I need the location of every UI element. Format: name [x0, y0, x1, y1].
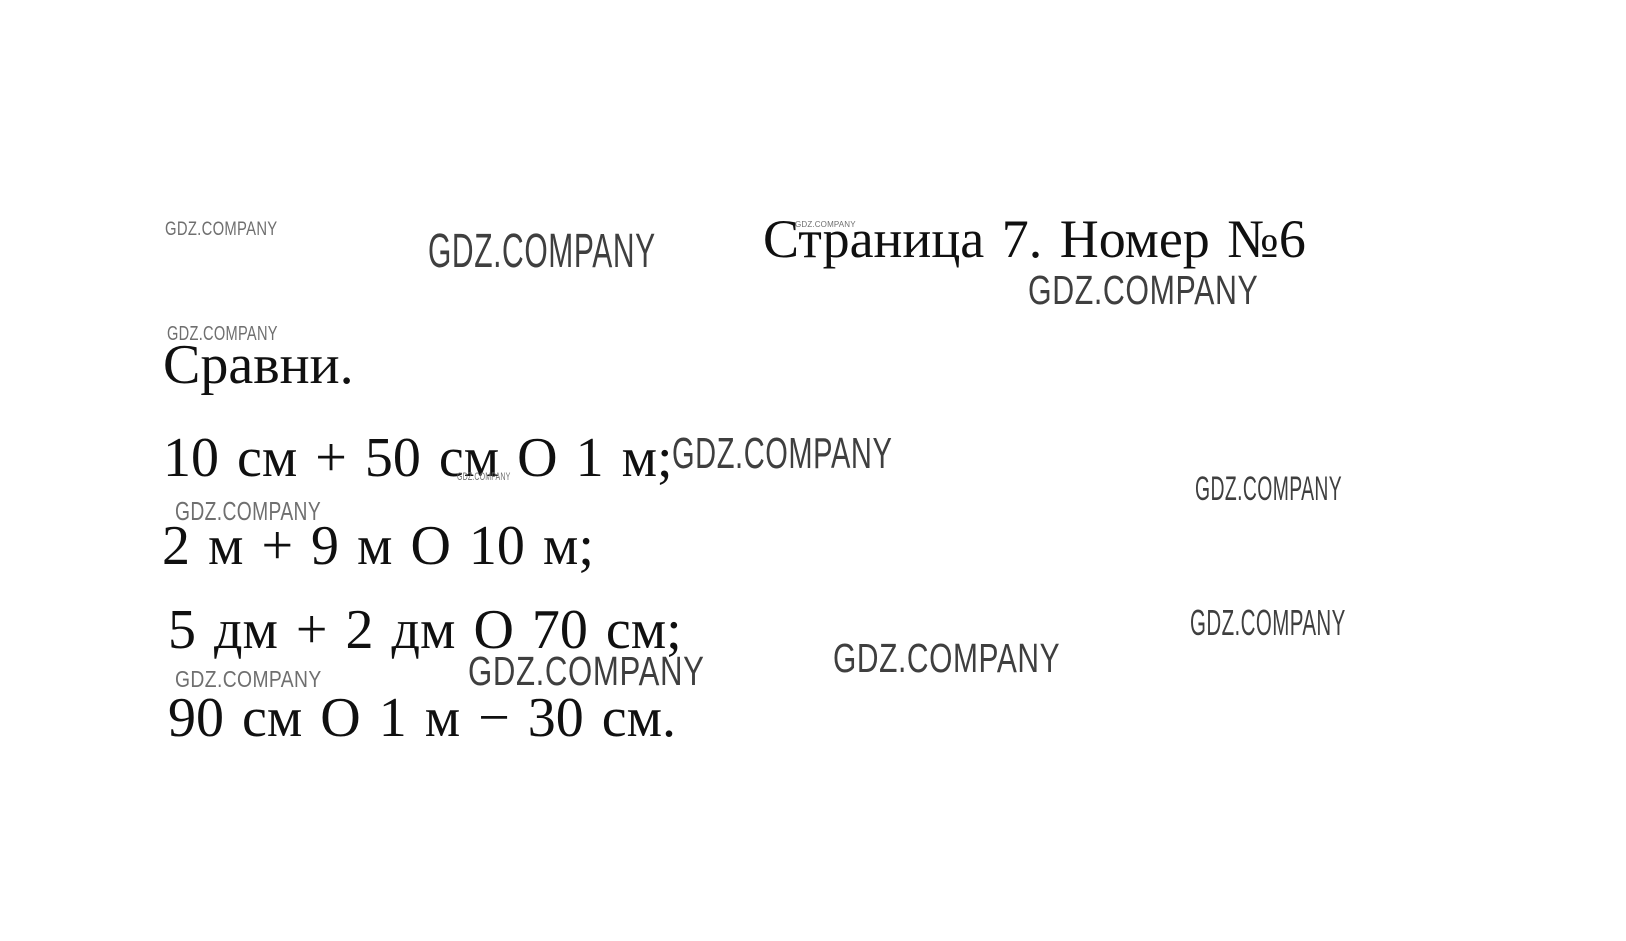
gdz-watermark: GDZ.COMPANY	[468, 651, 705, 692]
task-instruction: Сравни.	[163, 337, 354, 393]
gdz-watermark: GDZ.COMPANY	[1028, 270, 1258, 311]
gdz-watermark: GDZ.COMPANY	[457, 472, 510, 483]
exercise-line-2: 2 м + 9 м О 10 м;	[162, 518, 594, 574]
gdz-watermark: GDZ.COMPANY	[167, 324, 278, 344]
gdz-watermark: GDZ.COMPANY	[175, 668, 322, 691]
gdz-watermark: GDZ.COMPANY	[1195, 472, 1342, 506]
gdz-watermark: GDZ.COMPANY	[833, 638, 1060, 679]
gdz-watermark: GDZ.COMPANY	[428, 228, 656, 276]
exercise-line-4: 90 см О 1 м − 30 см.	[168, 690, 676, 746]
gdz-watermark: GDZ.COMPANY	[1190, 605, 1346, 641]
solution-page: Страница 7. Номер №6 Сравни. 10 см + 50 …	[0, 0, 1626, 941]
gdz-watermark: GDZ.COMPANY	[165, 220, 278, 239]
gdz-watermark: GDZ.COMPANY	[795, 221, 856, 229]
gdz-watermark: GDZ.COMPANY	[672, 432, 892, 476]
gdz-watermark: GDZ.COMPANY	[175, 498, 321, 524]
exercise-line-1: 10 см + 50 см О 1 м;	[163, 430, 673, 486]
